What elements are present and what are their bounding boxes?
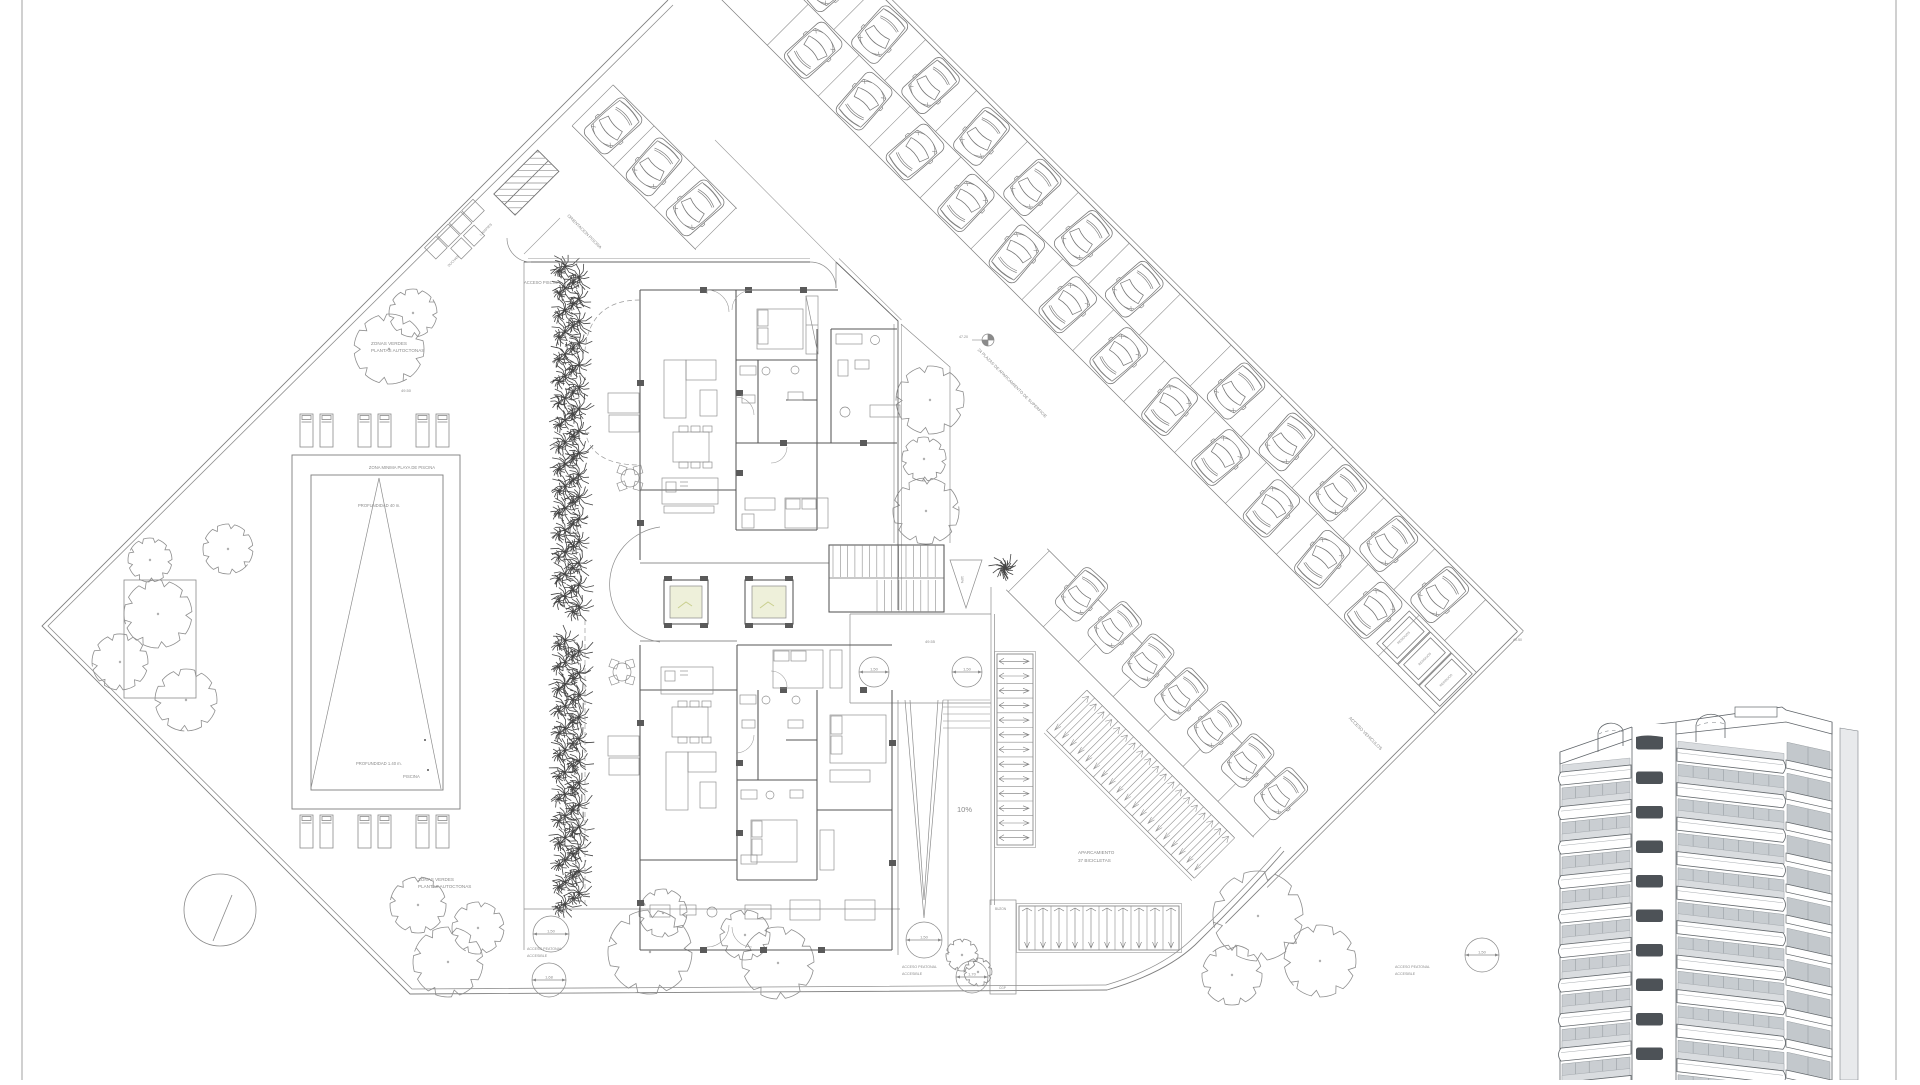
svg-text:PLANTAS AUTOCTONAS: PLANTAS AUTOCTONAS: [418, 884, 471, 889]
svg-text:PISCINA: PISCINA: [403, 774, 420, 779]
svg-text:47.20: 47.20: [959, 335, 968, 339]
svg-text:1,50: 1,50: [963, 667, 972, 672]
svg-text:ACCESIBLE: ACCESIBLE: [1395, 972, 1416, 976]
svg-text:BUZON: BUZON: [995, 907, 1007, 911]
svg-text:1,50: 1,50: [920, 935, 929, 940]
svg-text:ZONAS VERDES: ZONAS VERDES: [418, 877, 454, 882]
svg-text:ACCESO PEATONAL: ACCESO PEATONAL: [902, 965, 937, 969]
svg-text:ACCESIBLE: ACCESIBLE: [902, 972, 923, 976]
svg-text:49.50: 49.50: [401, 388, 412, 393]
svg-text:37 BICICLETAS: 37 BICICLETAS: [1078, 858, 1111, 863]
svg-text:10%: 10%: [960, 576, 964, 584]
svg-text:4X.50: 4X.50: [1513, 638, 1522, 642]
svg-text:10%: 10%: [957, 805, 972, 814]
svg-text:1,50: 1,50: [870, 667, 879, 672]
svg-text:PROFUNDIDAD 40 m.: PROFUNDIDAD 40 m.: [358, 503, 400, 508]
svg-text:ZONA MINIMA PLAYA DE PISCINA: ZONA MINIMA PLAYA DE PISCINA: [369, 465, 435, 470]
svg-text:ACCESO PEATONAL: ACCESO PEATONAL: [527, 947, 562, 951]
svg-text:APARCAMIENTO: APARCAMIENTO: [1078, 850, 1115, 855]
svg-text:ACCESO PISCINA: ACCESO PISCINA: [524, 280, 560, 285]
svg-text:49.55: 49.55: [925, 639, 936, 644]
svg-text:CGP: CGP: [999, 986, 1006, 990]
svg-text:PLANTAS AUTOCTONAS: PLANTAS AUTOCTONAS: [371, 348, 424, 353]
svg-text:1,70: 1,70: [968, 972, 977, 977]
svg-text:ZONAS VERDES: ZONAS VERDES: [371, 341, 407, 346]
svg-text:1,68: 1,68: [545, 975, 554, 980]
svg-text:ACCESIBLE: ACCESIBLE: [527, 954, 548, 958]
svg-text:1,50: 1,50: [1478, 950, 1487, 955]
svg-text:1,50: 1,50: [547, 929, 556, 934]
svg-text:ACCESO PEATONAL: ACCESO PEATONAL: [1395, 965, 1430, 969]
svg-text:PROFUNDIDAD 1.40 m.: PROFUNDIDAD 1.40 m.: [356, 761, 402, 766]
